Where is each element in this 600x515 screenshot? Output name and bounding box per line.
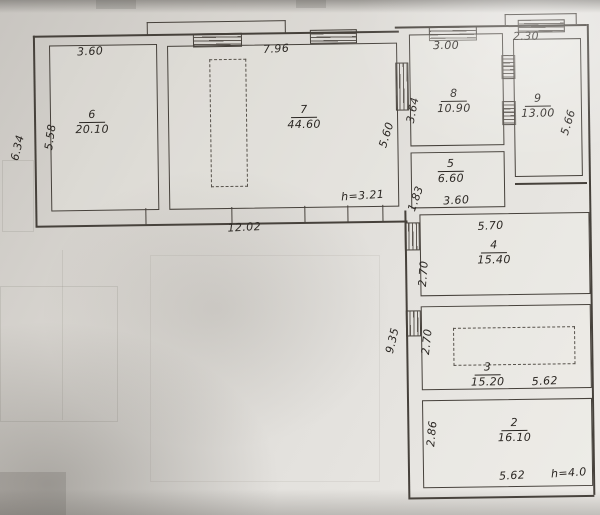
- wall-hatch: [406, 310, 421, 336]
- room-5-number: 5: [438, 158, 464, 172]
- room-7-label: 7 44.60: [276, 104, 332, 132]
- room-3-area: 15.20: [460, 375, 516, 389]
- room-3-dashed-feature: [453, 326, 576, 366]
- wall-lower-wing-outer-left: [404, 211, 410, 498]
- dim-room6-width: 3.60: [77, 44, 104, 58]
- note-ceiling-height-right: h=4.0: [551, 465, 587, 480]
- room-8-number: 8: [441, 88, 467, 102]
- room-9-label: 9 13.00: [512, 92, 564, 120]
- dim-room2-width: 5.62: [499, 468, 526, 482]
- wall-tick: [145, 208, 147, 225]
- room-6-area: 20.10: [64, 122, 120, 136]
- room-8-label: 8 10.90: [428, 87, 480, 115]
- dim-room4-width: 5.70: [477, 219, 504, 233]
- room-9-area: 13.00: [512, 106, 564, 120]
- room-4-label: 4 15.40: [466, 239, 522, 267]
- dim-room7-width: 7.96: [263, 42, 290, 56]
- wall-lower-wing-outer-bottom: [408, 495, 594, 499]
- room-2-number: 2: [502, 417, 528, 431]
- dim-room3-width: 5.62: [531, 374, 558, 388]
- room-7-number: 7: [291, 104, 317, 118]
- floor-plan-drawing: 3.60 5.58 6 20.10 6.34 7.96 7 44.60 5.60…: [0, 0, 600, 515]
- room-2-label: 2 16.10: [486, 417, 542, 445]
- room-3-label: 3 15.20: [459, 361, 515, 389]
- room-8-area: 10.90: [428, 101, 480, 115]
- wall-tick: [304, 206, 306, 223]
- dim-exterior-height: 6.34: [8, 134, 27, 162]
- dim-room8-width: 3.00: [433, 39, 459, 52]
- room-4-area: 15.40: [466, 253, 522, 267]
- window-symbol: [193, 33, 242, 48]
- room-6-number: 6: [79, 109, 105, 123]
- room-5-label: 5 6.60: [423, 157, 479, 185]
- wall-hatch: [405, 222, 420, 250]
- wall-tick: [347, 205, 349, 222]
- dim-room4-depth: 2.70: [416, 260, 431, 287]
- room-6-label: 6 20.10: [64, 109, 120, 137]
- room-3-number: 3: [475, 361, 501, 375]
- wall-tick: [382, 205, 384, 222]
- wall-left-wing-outer-left: [33, 36, 37, 227]
- room-7-area: 44.60: [276, 117, 332, 131]
- dim-room2-depth: 2.86: [424, 420, 439, 447]
- room-7-dashed-feature: [209, 59, 248, 188]
- room-5-area: 6.60: [423, 171, 479, 185]
- room-9-number: 9: [525, 92, 551, 106]
- wall-room9-bottom-outer: [515, 182, 587, 185]
- wall-left-wing-outer-bottom: [36, 220, 408, 227]
- dim-right-wing-height: 9.35: [383, 326, 402, 354]
- floor-plan-photo: 3.60 5.58 6 20.10 6.34 7.96 7 44.60 5.60…: [0, 0, 600, 515]
- dim-room9-width: 2.30: [513, 30, 539, 43]
- room-4-number: 4: [481, 239, 507, 253]
- dim-room5-width: 3.60: [443, 193, 470, 207]
- room-2-area: 16.10: [486, 430, 542, 444]
- window-symbol: [310, 29, 357, 44]
- dim-left-wing-width: 12.02: [227, 220, 261, 235]
